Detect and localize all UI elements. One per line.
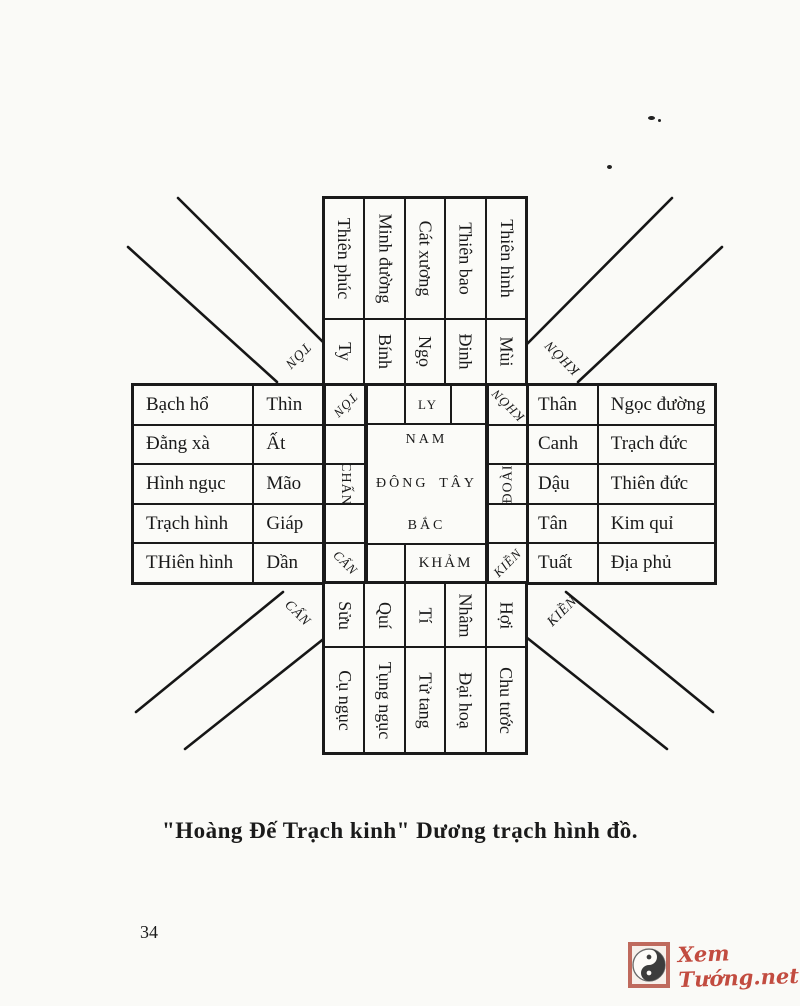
diagonal-top-right-inner [578,247,722,382]
ink-speck [607,165,612,169]
cell-tuat: Tuất [529,544,597,582]
left-table: Bạch hổ Thìn Đằng xà Ất Hình ngục Mão Tr… [131,383,325,585]
diagonal-top-left-inner [128,247,277,382]
diagonal-bottom-left-upper [136,592,283,712]
cell-hoi: Hợi [487,584,525,646]
ink-speck [648,116,655,120]
cell-dai-hoa: Đại hoạ [446,648,484,752]
figure-caption: "Hoàng Đế Trạch kinh" Dương trạch hình đ… [0,818,800,844]
label-kien-outer: KIỀN [535,584,592,641]
diagonal-top-right-outer [527,198,672,344]
empty-cell [452,386,485,423]
empty-cell [489,426,527,464]
left-trigram-column: TỐN CHẤN CẤN [323,383,367,585]
ink-speck [658,119,661,122]
cell-cat-xuong: Cát xương [406,199,444,318]
cell-dau: Dậu [529,465,597,503]
cell-hinh-nguc: Hình ngục [134,465,252,503]
cell-can-inner: CẤN [326,544,364,582]
cell-nham: Nhâm [446,584,484,646]
cell-kim-qui: Kim quỉ [599,505,714,543]
cell-thien-bao: Thiên bao [446,199,484,318]
cell-thin: Thìn [254,386,322,424]
label-nam: NAM [406,432,448,448]
watermark-text[interactable]: Xem Tướng.net [677,938,800,992]
cell-cu-nguc: Cụ ngục [325,648,363,752]
cell-ngoc-duong: Ngọc đường [599,386,714,424]
cell-thien-hinh-left: THiên hình [134,544,252,582]
cell-mao: Mão [254,465,322,503]
cell-ty: Ty [325,320,363,383]
label-bac: BẮC [408,518,446,534]
cell-suu: Sửu [325,584,363,646]
page-number: 34 [140,922,158,943]
cell-giap: Giáp [254,505,322,543]
center-compass-box: NAM ĐÔNG TÂY BẮC [368,425,485,543]
label-tay: TÂY [439,476,477,492]
cell-canh: Canh [529,426,597,464]
cell-than: Thân [529,386,597,424]
bottom-arm-table: Sửu Quí Tí Nhâm Hợi Cụ ngục Tụng ngục Tử… [322,581,528,755]
cell-dang-xa: Đằng xà [134,426,252,464]
cell-chan-inner: CHẤN [326,465,364,503]
top-arm-table: Thiên phúc Minh đường Cát xương Thiên ba… [322,196,528,386]
label-khon-outer: KHÔN [535,329,592,386]
cell-tan: Tân [529,505,597,543]
cell-dan: Dần [254,544,322,582]
cell-tung-nguc: Tụng ngục [365,648,403,752]
empty-cell [326,426,364,464]
cell-qui: Quí [365,584,403,646]
cell-at: Ất [254,426,322,464]
cell-kham: KHẢM [406,545,485,582]
right-trigram-column: KHÔN ĐOÀI KIỀN [486,383,530,585]
empty-cell [368,545,404,582]
label-dong: ĐÔNG [376,476,428,492]
center-area: LY NAM ĐÔNG TÂY BẮC KHẢM [365,383,488,585]
label-ton-outer: TÔN [269,327,326,384]
cell-binh: Bính [365,320,403,383]
cell-doai-inner: ĐOÀI [489,465,527,503]
cell-trach-duc: Trạch đức [599,426,714,464]
diagonal-bottom-right-lower [526,637,667,749]
cell-trach-hinh: Trạch hình [134,505,252,543]
cell-chu-tuoc: Chu tước [487,648,525,752]
cell-minh-duong: Minh đường [365,199,403,318]
cell-mui: Mùi [487,320,525,383]
site-watermark[interactable]: Xem Tướng.net [628,940,800,990]
right-table: Thân Ngọc đường Canh Trạch đức Dậu Thiên… [526,383,717,585]
empty-cell [489,505,527,543]
cell-dinh: Đinh [446,320,484,383]
cell-ton-inner: TỐN [326,386,364,424]
cell-ti: Tí [406,584,444,646]
scanned-page: { "caption": "\"Hoàng Đế Trạch kinh\" Dư… [0,0,800,1006]
yin-yang-icon [628,942,670,988]
diagonal-top-left-outer [178,198,325,344]
empty-cell [368,386,404,423]
cell-thien-duc: Thiên đức [599,465,714,503]
cell-thien-hinh: Thiên hình [487,199,525,318]
cell-ngo: Ngọ [406,320,444,383]
cell-tu-tang: Tử tang [406,648,444,752]
empty-cell [326,505,364,543]
cell-thien-phuc: Thiên phúc [325,199,363,318]
cell-kien-inner: KIỀN [489,544,527,582]
diagonal-bottom-left-lower [185,637,326,749]
label-can-outer: CẤN [269,586,326,643]
cell-khon-inner: KHÔN [489,386,527,424]
cell-ly: LY [406,386,450,423]
cell-bach-ho: Bạch hổ [134,386,252,424]
cell-dia-phu: Địa phủ [599,544,714,582]
